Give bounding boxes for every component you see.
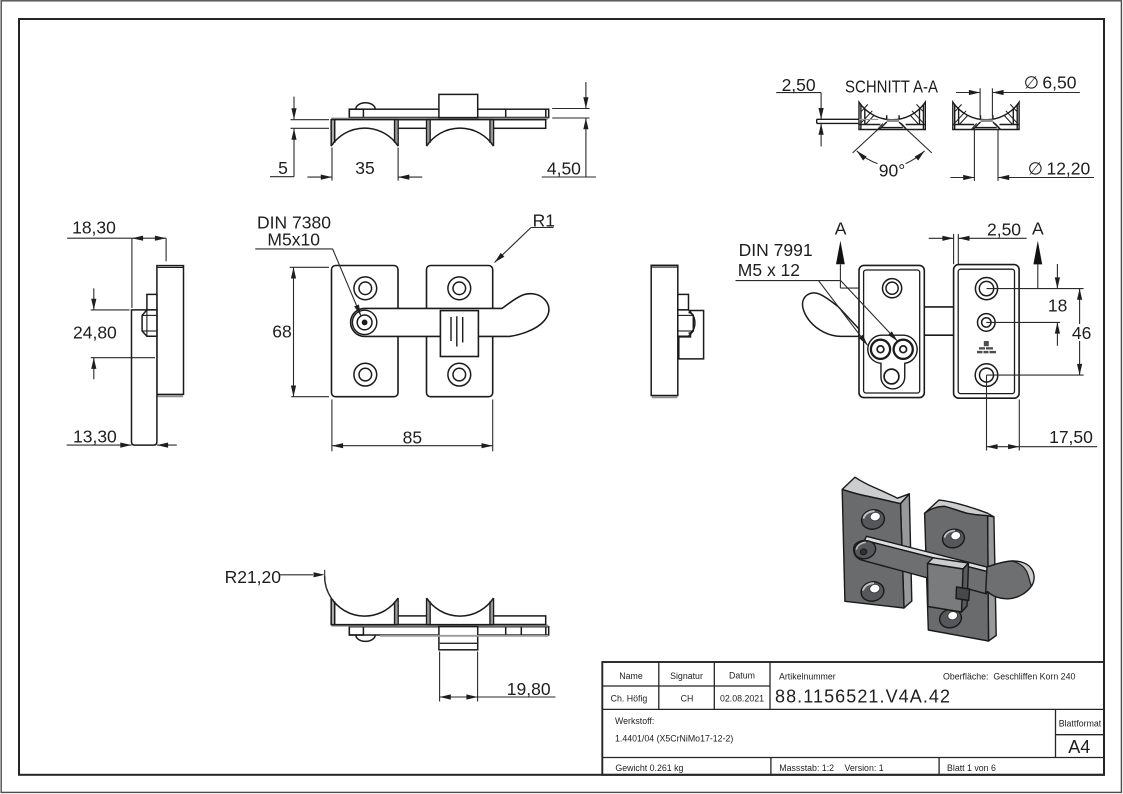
- svg-text:M5x10: M5x10: [267, 230, 320, 250]
- svg-text:88.1156521.V4A.42: 88.1156521.V4A.42: [775, 686, 950, 706]
- svg-text:Artikelnummer: Artikelnummer: [779, 671, 836, 681]
- svg-text:68: 68: [272, 322, 291, 342]
- svg-text:19,80: 19,80: [507, 679, 551, 699]
- svg-text:Blattformat: Blattformat: [1059, 719, 1102, 729]
- svg-text:∅ 6,50: ∅ 6,50: [1024, 72, 1077, 92]
- svg-text:5: 5: [278, 158, 288, 178]
- svg-text:17,50: 17,50: [1049, 427, 1093, 447]
- svg-text:2,50: 2,50: [987, 219, 1021, 239]
- svg-text:A4: A4: [1068, 737, 1090, 757]
- svg-text:90°: 90°: [879, 160, 905, 180]
- svg-text:SCHNITT A-A: SCHNITT A-A: [845, 77, 938, 97]
- svg-text:Blatt 1 von 6: Blatt 1 von 6: [947, 763, 996, 773]
- svg-text:Gewicht 0.261 kg: Gewicht 0.261 kg: [615, 763, 683, 773]
- svg-text:∅ 12,20: ∅ 12,20: [1028, 158, 1091, 178]
- svg-text:Ch. Höfig: Ch. Höfig: [611, 694, 648, 704]
- svg-text:A: A: [1032, 218, 1044, 238]
- svg-text:85: 85: [403, 427, 422, 447]
- svg-text:Datum: Datum: [729, 670, 755, 680]
- svg-text:13,30: 13,30: [73, 427, 117, 447]
- svg-text:24,80: 24,80: [73, 323, 117, 343]
- svg-text:Name: Name: [619, 671, 643, 681]
- svg-text:35: 35: [355, 158, 374, 178]
- svg-text:18: 18: [1048, 296, 1067, 316]
- svg-text:Werkstoff:: Werkstoff:: [615, 716, 654, 726]
- svg-text:A: A: [835, 218, 847, 238]
- svg-text:R21,20: R21,20: [225, 567, 282, 587]
- svg-text:1.4401/04 (X5CrNiMo17-12-2): 1.4401/04 (X5CrNiMo17-12-2): [615, 734, 733, 744]
- svg-text:46: 46: [1072, 323, 1091, 343]
- svg-text:4,50: 4,50: [547, 158, 581, 178]
- svg-text:2,50: 2,50: [782, 75, 816, 95]
- svg-text:M5 x 12: M5 x 12: [738, 260, 800, 280]
- svg-text:Version: 1: Version: 1: [845, 763, 884, 773]
- svg-text:Oberfläche: Geschliffen Korn: Oberfläche: Geschliffen Korn 240: [943, 671, 1075, 681]
- svg-text:CH: CH: [681, 693, 694, 703]
- svg-text:02.08.2021: 02.08.2021: [720, 693, 764, 703]
- svg-text:Massstab: 1:2: Massstab: 1:2: [779, 763, 834, 773]
- svg-text:R1: R1: [533, 211, 555, 231]
- svg-text:18,30: 18,30: [72, 218, 116, 238]
- svg-text:Signatur: Signatur: [670, 671, 703, 681]
- svg-text:DIN 7991: DIN 7991: [739, 240, 813, 260]
